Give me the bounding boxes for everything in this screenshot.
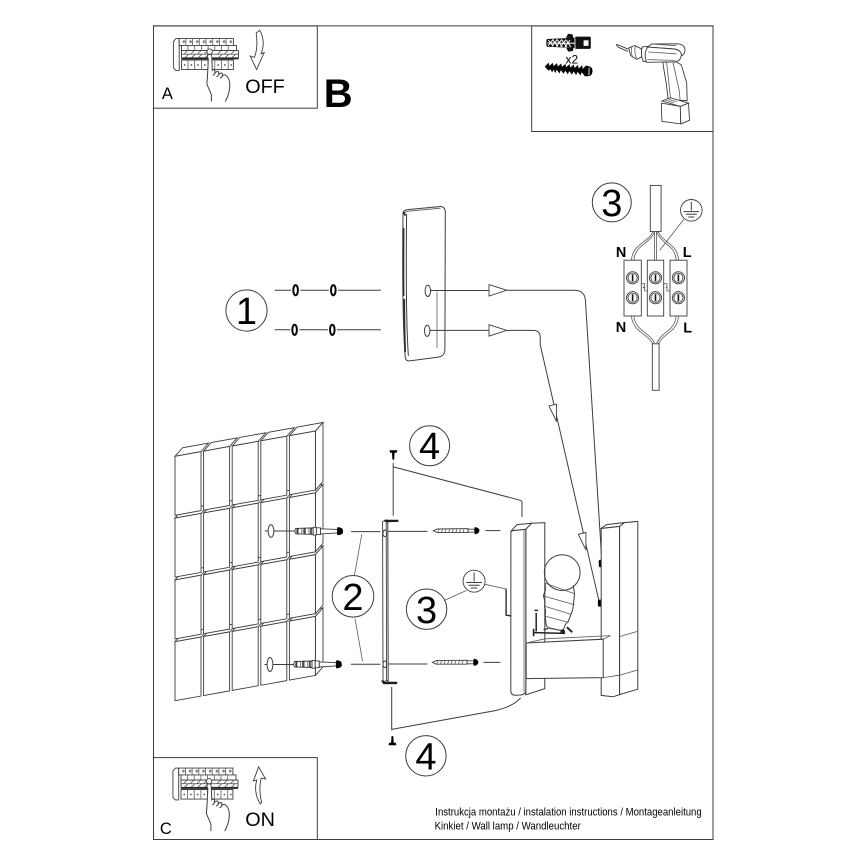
svg-text:3: 3	[416, 590, 437, 632]
svg-text:2: 2	[342, 577, 363, 619]
svg-text:x2: x2	[566, 53, 579, 67]
svg-text:Kinkiet / Wall lamp / Wandleuc: Kinkiet / Wall lamp / Wandleuchter	[435, 820, 581, 832]
svg-text:C: C	[160, 820, 172, 838]
svg-text:1: 1	[236, 291, 257, 333]
svg-text:N: N	[616, 320, 626, 336]
svg-text:B: B	[324, 72, 353, 116]
svg-text:4: 4	[419, 426, 440, 468]
svg-text:4: 4	[415, 736, 436, 778]
svg-text:L: L	[683, 321, 692, 337]
svg-text:N: N	[616, 245, 626, 261]
svg-text:L: L	[683, 245, 692, 261]
svg-text:3: 3	[601, 183, 622, 225]
svg-text:A: A	[162, 85, 173, 103]
svg-text:ON: ON	[245, 809, 275, 831]
svg-text:OFF: OFF	[245, 76, 285, 98]
svg-text:Instrukcja montażu / instalati: Instrukcja montażu / instalation instruc…	[435, 806, 701, 818]
